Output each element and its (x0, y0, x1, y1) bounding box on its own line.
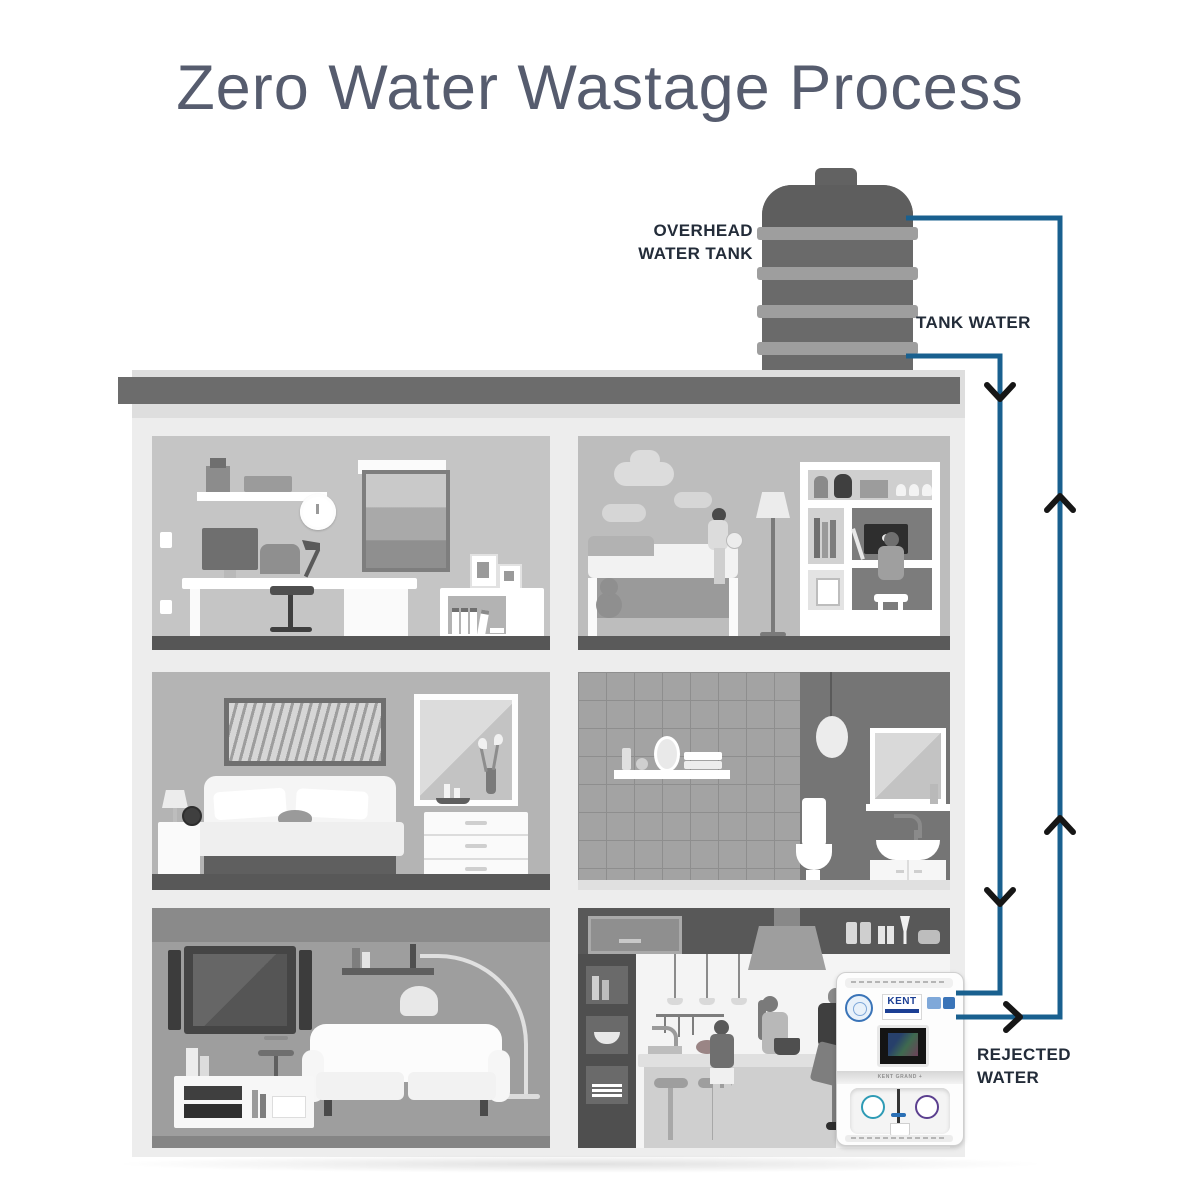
floor-lamp-shade (756, 492, 790, 518)
wall-clock (300, 494, 336, 530)
up-arrow-icon (1047, 496, 1073, 510)
stool-seat (874, 594, 908, 602)
purifier-tagline-text (851, 981, 947, 983)
storage-box (206, 466, 230, 492)
arc-lamp-shade (400, 986, 438, 1016)
desk-lamp-arm (851, 528, 865, 560)
desk-leg (190, 589, 200, 637)
storage-box (210, 458, 226, 468)
ceiling-shade (152, 908, 550, 942)
tiled-wall (578, 672, 800, 890)
girl-legs (714, 548, 725, 584)
plate (592, 1089, 622, 1092)
vase (186, 1048, 198, 1076)
mirror-ledge (866, 804, 950, 811)
monitor-stand (224, 570, 236, 578)
toilet-tank (802, 798, 826, 846)
floor (578, 636, 950, 650)
picture-frame (498, 564, 522, 590)
pendant-cord (738, 954, 740, 998)
building-shadow (110, 1155, 1050, 1173)
office-chair-back (260, 544, 300, 574)
towel (684, 752, 722, 760)
book (814, 518, 820, 558)
floor (152, 1136, 550, 1148)
tank-dome (762, 185, 913, 227)
table-lamp-shade (162, 790, 188, 808)
bar-stool-seat (654, 1078, 688, 1088)
tank-water-label: TANK WATER (916, 312, 1031, 335)
sink-basin (876, 840, 940, 860)
candle (454, 788, 460, 798)
duck-toy (909, 484, 919, 496)
floor (152, 874, 550, 890)
overhead-water-tank (762, 185, 913, 375)
binder (470, 608, 477, 638)
bath-shelf (614, 770, 730, 779)
sofa-leg (480, 1100, 488, 1116)
drawer-handle (465, 821, 487, 825)
sofa-cushion (316, 1072, 404, 1100)
cubby (586, 966, 628, 1004)
drawer-line (424, 834, 528, 836)
toy-box (860, 480, 888, 498)
tank-ring (757, 342, 918, 355)
wall-art (224, 698, 386, 766)
wall-mirror (414, 694, 518, 806)
boy-head (884, 532, 899, 547)
shelf-top-row (808, 470, 932, 500)
desk-pedestal (344, 589, 408, 637)
media-console (174, 1076, 314, 1128)
pendant-cord (830, 672, 832, 718)
hood-duct (774, 908, 800, 928)
down-arrow-icon (987, 385, 1013, 399)
tv (184, 946, 296, 1034)
tumbler (887, 926, 894, 944)
drawer-handle (465, 844, 487, 848)
badge-inner-ring (853, 1002, 867, 1016)
side-table-item (264, 1036, 288, 1040)
vase (200, 1056, 209, 1076)
console-box (272, 1096, 306, 1118)
floor (152, 636, 550, 650)
ball (726, 532, 743, 549)
teddy-bear-head (600, 578, 618, 596)
rejected-water-label-line2: WATER (977, 1067, 1071, 1090)
overhead-tank-label-line2: WATER TANK (600, 243, 753, 266)
boy-shirt (710, 1034, 734, 1068)
monitor (202, 528, 258, 570)
picture-frame (816, 578, 840, 606)
book (362, 952, 370, 968)
flower-vase (486, 768, 496, 794)
book (260, 1094, 266, 1118)
tumbler (878, 926, 885, 944)
cabinet-handle (619, 939, 641, 943)
pendant-shade (699, 998, 715, 1005)
vanity-mirror (654, 736, 680, 772)
chair-seat (270, 586, 314, 595)
room-kids (578, 436, 950, 650)
purifier-bottom-strip (845, 1135, 953, 1142)
save-water-badge (861, 1095, 885, 1119)
up-arrow-icon (1047, 818, 1073, 832)
pendant-shade (667, 998, 683, 1005)
kent-brand-text: KENT (883, 995, 921, 1008)
bottle (622, 748, 631, 770)
purifier-display (877, 1025, 929, 1067)
purity-badge (915, 1095, 939, 1119)
tv-screen (193, 954, 287, 1026)
book (352, 948, 360, 968)
boy-leg (724, 1084, 731, 1140)
kids-shelf-unit (800, 462, 940, 638)
infographic-canvas: Zero Water Wastage Process OVERHEAD WATE… (0, 0, 1200, 1200)
flower (494, 734, 503, 745)
room-home-office (152, 436, 550, 650)
clock-hand (316, 504, 319, 514)
jar (636, 758, 648, 770)
kids-bed-pillow (588, 536, 654, 556)
side-table-stem (274, 1056, 278, 1076)
candle (444, 784, 450, 798)
utensil (678, 1017, 680, 1037)
tank-ring (757, 305, 918, 318)
water-purifier: KENT KENT GRAND + (836, 972, 964, 1146)
boy-leg (713, 1084, 720, 1140)
bed-leg (729, 578, 738, 636)
rejected-water-label-line1: REJECTED (977, 1044, 1071, 1067)
person-woman (746, 996, 802, 1068)
bookend (410, 944, 416, 968)
water-tap (897, 1089, 900, 1127)
jar (860, 922, 871, 944)
cloud (674, 492, 712, 508)
bottle (592, 976, 599, 1000)
certification-badge (845, 994, 873, 1022)
binder (452, 608, 459, 638)
doll-toy (814, 476, 828, 498)
book (822, 522, 828, 558)
frame-photo (504, 571, 514, 581)
bottle (930, 784, 938, 804)
pendant-lamp (816, 716, 848, 758)
window (362, 470, 450, 572)
penguin-toy (834, 474, 852, 498)
drawer-line (424, 858, 528, 860)
down-arrow-icon (987, 890, 1013, 904)
upper-cabinet (588, 916, 682, 954)
feature-badge (943, 997, 955, 1009)
pendant-shade (731, 998, 747, 1005)
shelf-dots (490, 628, 504, 633)
person-boy (704, 1020, 740, 1146)
bed-base (204, 856, 396, 874)
book (252, 1090, 258, 1118)
feature-badge (927, 997, 941, 1009)
speaker (299, 950, 312, 1030)
rejected-water-label: REJECTED WATER (977, 1044, 1071, 1090)
roof-band (118, 377, 960, 404)
pot (918, 930, 940, 944)
bottle (602, 980, 609, 1000)
storage-box (244, 476, 292, 492)
kent-logo: KENT (882, 994, 922, 1020)
cloud (602, 504, 646, 522)
tank-ring (757, 227, 918, 240)
jar (846, 922, 857, 944)
stool-leg (898, 602, 903, 636)
boy-shorts (710, 1068, 734, 1084)
chair-pole (288, 595, 293, 627)
cabinet-handle (914, 870, 922, 873)
page-title: Zero Water Wastage Process (0, 52, 1200, 124)
utensil-rail (656, 1014, 724, 1017)
duck-toy (896, 484, 906, 496)
towel (684, 761, 722, 769)
utensil (692, 1017, 694, 1035)
wall-outlet (160, 532, 172, 548)
overhead-tank-label: OVERHEAD WATER TANK (600, 220, 753, 266)
cubby (586, 1016, 628, 1054)
shelf-frame-nook (808, 570, 844, 610)
candle-dish (436, 798, 470, 804)
purifier-footer-text (851, 1137, 947, 1139)
boy-body (878, 546, 904, 580)
room-bathroom (578, 672, 950, 890)
sideboard (440, 588, 544, 640)
overhead-tank-label-line1: OVERHEAD (600, 220, 753, 243)
room-living (152, 908, 550, 1148)
nightstand (158, 822, 200, 876)
desk-lamp-arm (304, 549, 320, 578)
duck-toy (922, 484, 932, 496)
bar-stool-leg (668, 1088, 673, 1140)
bathroom-floor (578, 880, 950, 890)
pendant-cord (706, 954, 708, 998)
stool-leg (878, 602, 883, 636)
cloud (630, 450, 660, 470)
dresser (424, 812, 528, 882)
drawer-handle (465, 867, 487, 871)
purifier-top-strip (845, 978, 953, 988)
cooking-pot (774, 1038, 800, 1055)
display-image (888, 1033, 918, 1056)
flower (478, 738, 487, 749)
fruit-bowl (594, 1032, 620, 1044)
floor-lamp-pole (771, 518, 775, 632)
bed-mattress (196, 822, 404, 856)
alarm-clock (182, 806, 202, 826)
sofa-leg (324, 1100, 332, 1116)
tank-ring (757, 267, 918, 280)
kitchen-tall-unit (578, 954, 636, 1148)
chair-base (270, 627, 312, 632)
sink (648, 1046, 682, 1054)
wall-outlet (160, 600, 172, 614)
right-arrow-icon (1006, 1004, 1020, 1030)
book (830, 520, 836, 558)
plate (592, 1084, 622, 1087)
picture-frame (470, 554, 498, 588)
stereo-unit (184, 1104, 242, 1118)
plate (592, 1094, 622, 1097)
shelf-books-nook (808, 508, 844, 564)
room-bedroom (152, 672, 550, 890)
toilet-bowl (796, 844, 832, 870)
table-lamp-stem (173, 808, 177, 822)
model-band: KENT GRAND + (837, 1071, 963, 1084)
speaker (168, 950, 181, 1030)
kent-logo-bar (885, 1009, 919, 1013)
range-hood (748, 926, 826, 970)
desk-lamp-head (302, 540, 320, 550)
boy-head (714, 1020, 729, 1035)
pillow (213, 788, 287, 821)
girl-body (708, 520, 728, 550)
cubby (586, 1066, 628, 1104)
stereo-unit (184, 1086, 242, 1100)
sofa-cushion (408, 1072, 496, 1100)
frame-photo (477, 562, 489, 578)
tap-handle (891, 1113, 906, 1117)
cabinet-handle (896, 870, 904, 873)
pendant-cord (674, 954, 676, 998)
binder (461, 608, 468, 638)
